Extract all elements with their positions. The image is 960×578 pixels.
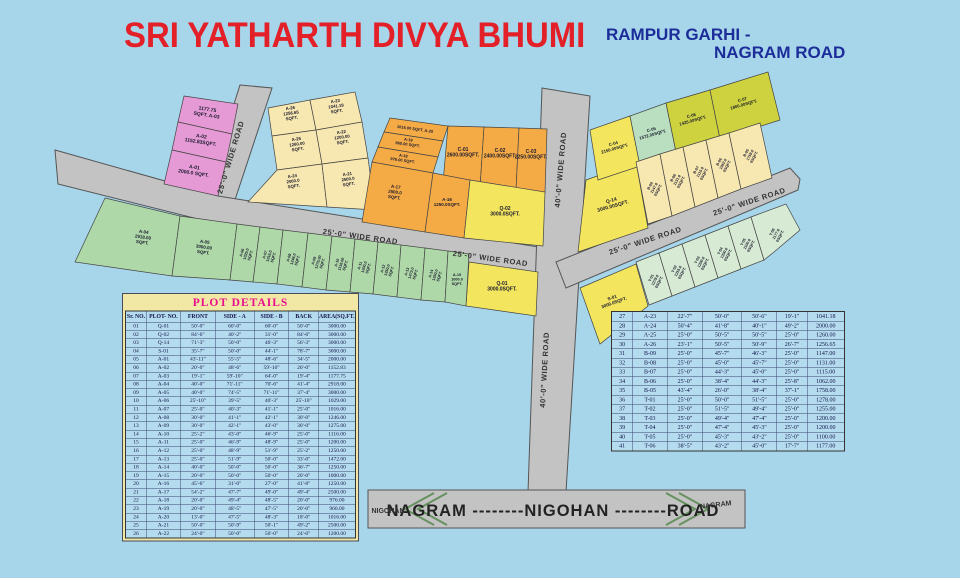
table-cell: 1255.00 xyxy=(807,404,844,413)
table-cell: 1029.00 xyxy=(319,397,356,405)
table-cell: 26'-0" xyxy=(702,386,742,395)
table-cell: A-16 xyxy=(146,480,181,488)
table-cell: 50'-0" xyxy=(254,463,289,471)
table-cell: 25'-0" xyxy=(777,414,807,423)
table-cell: 1200.00 xyxy=(319,530,356,539)
table-cell: 1200.00 xyxy=(807,423,844,432)
table-cell: 1250.00 xyxy=(319,480,356,488)
table-cell: A-11 xyxy=(146,438,181,446)
table-cell: 37'-1" xyxy=(777,386,807,395)
table-cell: 42'-1" xyxy=(215,422,254,430)
table-cell: 1041.18 xyxy=(807,312,844,322)
table-cell: T-04 xyxy=(632,423,667,432)
plot-table-header: Sr. NO.PLOT- NO.FRONTSIDE - ASIDE - BBAC… xyxy=(126,311,356,322)
plot-table-left: Sr. NO.PLOT- NO.FRONTSIDE - ASIDE - BBAC… xyxy=(125,311,356,539)
table-cell: B-07 xyxy=(632,367,667,376)
table-cell: 25'-10" xyxy=(289,397,319,405)
table-cell: S-01 xyxy=(146,347,181,355)
table-cell: 50'-9" xyxy=(215,521,254,529)
table-cell: 60'-0" xyxy=(254,322,289,330)
table-cell: 41 xyxy=(612,441,633,451)
table-cell: 20'-0" xyxy=(289,364,319,372)
table-cell: 24'-0" xyxy=(289,530,319,539)
table-cell: 44'-3" xyxy=(742,377,777,386)
table-cell: 2500.00 xyxy=(319,488,356,496)
table-cell: 25'-2" xyxy=(181,430,216,438)
table-row: 40T-0525'-0"45'-3"43'-2"25'-0"1100.00 xyxy=(612,432,845,441)
table-cell: 50'-5" xyxy=(702,330,742,339)
table-cell: 2500.00 xyxy=(319,521,356,529)
table-cell: 21 xyxy=(126,488,147,496)
table-cell: 49'-4" xyxy=(215,496,254,504)
table-cell: 50'-0" xyxy=(702,395,742,404)
table-cell: 25'-2" xyxy=(289,447,319,455)
table-cell: 40'-2" xyxy=(215,331,254,339)
page-background: SRI YATHARTH DIVYA BHUMI RAMPUR GARHI - … xyxy=(0,0,960,578)
table-cell: 84'-6" xyxy=(289,331,319,339)
column-header: FRONT xyxy=(181,311,216,322)
table-cell: 25'-10" xyxy=(181,397,216,405)
table-cell: 25'-0" xyxy=(181,455,216,463)
table-cell: 47'-7" xyxy=(215,488,254,496)
table-cell: B-09 xyxy=(632,349,667,358)
table-cell: 48'-5" xyxy=(215,505,254,513)
table-cell: 05 xyxy=(126,355,147,363)
table-cell: 19'-4" xyxy=(289,372,319,380)
table-cell: 50'-6" xyxy=(742,312,777,322)
table-row: 16A-1225'-0"48'-9"51'-9"25'-2"1250.00 xyxy=(126,447,356,455)
table-cell: B-08 xyxy=(632,358,667,367)
table-cell: 04 xyxy=(126,347,147,355)
table-cell: 50'-0" xyxy=(181,322,216,330)
table-cell: 1115.00 xyxy=(807,367,844,376)
table-cell: 50'-0" xyxy=(289,322,319,330)
table-cell: 25'-8" xyxy=(777,377,807,386)
table-cell: 55'-5" xyxy=(215,355,254,363)
table-cell: 45'-0" xyxy=(702,358,742,367)
table-cell: A-25 xyxy=(632,330,667,339)
table-row: 41T-0638'-5"43'-2"45'-0"17'-7"1177.00 xyxy=(612,441,845,451)
table-row: 22A-1820'-0"49'-4"48'-5"20'-0"976.00 xyxy=(126,496,356,504)
table-cell: 45'-7" xyxy=(742,358,777,367)
table-row: 08A-0440'-0"71'-11"70'-6"41'-4"2918.00 xyxy=(126,380,356,388)
table-cell: 71'-11" xyxy=(215,380,254,388)
table-cell: A-08 xyxy=(146,414,181,422)
table-cell: A-15 xyxy=(146,472,181,480)
table-cell: 42'-1" xyxy=(254,414,289,422)
table-cell: 25'-0" xyxy=(777,423,807,432)
table-cell: A-26 xyxy=(632,340,667,349)
table-cell: 19'-1" xyxy=(181,372,216,380)
table-cell: 46'-3" xyxy=(742,349,777,358)
table-cell: 50'-0" xyxy=(215,339,254,347)
table-cell: A-14 xyxy=(146,463,181,471)
table-cell: 1250.00 xyxy=(319,463,356,471)
table-cell: 976.00 xyxy=(319,496,356,504)
table-cell: 37'-4" xyxy=(289,389,319,397)
table-cell: 25'-0" xyxy=(777,432,807,441)
table-cell: 06 xyxy=(126,364,147,372)
table-cell: Q-02 xyxy=(146,331,181,339)
table-cell: 43'-4" xyxy=(667,386,702,395)
table-row: 25A-2150'-0"50'-9"50'-1"49'-2"2500.00 xyxy=(126,521,356,529)
table-cell: 1062.00 xyxy=(807,377,844,386)
table-cell: 43'-11" xyxy=(181,355,216,363)
table-cell: 25'-0" xyxy=(667,377,702,386)
table-cell: 50'-0" xyxy=(254,455,289,463)
table-cell: A-20 xyxy=(146,513,181,521)
table-cell: B-06 xyxy=(632,377,667,386)
table-cell: 48'-5" xyxy=(254,496,289,504)
table-cell: 20'-0" xyxy=(181,364,216,372)
table-cell: 50'-0" xyxy=(215,347,254,355)
table-cell: 20 xyxy=(126,480,147,488)
table-cell: 30'-0" xyxy=(181,414,216,422)
table-cell: A-24 xyxy=(632,321,667,330)
table-cell: T-01 xyxy=(632,395,667,404)
table-cell: 1147.00 xyxy=(807,349,844,358)
table-cell: 17 xyxy=(126,455,147,463)
table-cell: 25'-0" xyxy=(667,330,702,339)
table-cell: 20'-0" xyxy=(289,505,319,513)
table-cell: 1177.00 xyxy=(807,441,844,451)
table-row: 30A-2623'-1"50'-5"50'-9"26'-7"1256.65 xyxy=(612,340,845,349)
table-cell: 30 xyxy=(612,340,633,349)
table-cell: 59'-10" xyxy=(215,372,254,380)
table-row: 34B-0625'-0"38'-4"44'-3"25'-8"1062.00 xyxy=(612,377,845,386)
table-cell: 24 xyxy=(126,513,147,521)
table-row: 12A-0830'-0"41'-1"42'-1"30'-0"1246.00 xyxy=(126,414,356,422)
table-cell: 45'-6" xyxy=(181,480,216,488)
table-cell: 38'-4" xyxy=(742,386,777,395)
table-cell: A-18 xyxy=(146,496,181,504)
table-cell: 43'-2" xyxy=(702,441,742,451)
table-cell: 40 xyxy=(612,432,633,441)
table-cell: 03 xyxy=(126,339,147,347)
table-cell: 50'-5" xyxy=(702,340,742,349)
table-cell: 02 xyxy=(126,331,147,339)
table-cell: 1177.75 xyxy=(319,372,356,380)
table-cell: A-22 xyxy=(146,530,181,539)
table-cell: 84'-6" xyxy=(181,331,216,339)
table-cell: 41'-1" xyxy=(254,405,289,413)
table-cell: 49'-4" xyxy=(702,414,742,423)
table-cell: 51'-9" xyxy=(215,455,254,463)
table-cell: 51'-5" xyxy=(702,404,742,413)
table-cell: 49'-2" xyxy=(777,321,807,330)
table-row: 06A-0220'-0"48'-6"59'-10"20'-0"1152.83 xyxy=(126,364,356,372)
table-cell: 25 xyxy=(126,521,147,529)
table-cell: 44'-1" xyxy=(254,347,289,355)
table-row: 37T-0225'-0"51'-5"49'-4"25'-0"1255.00 xyxy=(612,404,845,413)
table-cell: 12 xyxy=(126,414,147,422)
table-cell: 1256.65 xyxy=(807,340,844,349)
table-cell: 25'-0" xyxy=(181,405,216,413)
table-row: 39T-0425'-0"47'-4"45'-3"25'-0"1200.00 xyxy=(612,423,845,432)
table-row: 20A-1645'-6"31'-0"27'-0"41'-8"1250.00 xyxy=(126,480,356,488)
table-row: 26A-2224'-0"50'-0"50'-0"24'-0"1200.00 xyxy=(126,530,356,539)
table-cell: 24'-0" xyxy=(181,530,216,539)
table-cell: 25'-0" xyxy=(667,414,702,423)
table-cell: 36'-7" xyxy=(289,463,319,471)
table-cell: 31'-0" xyxy=(254,331,289,339)
table-cell: 01 xyxy=(126,322,147,330)
table-cell: Q-14 xyxy=(146,339,181,347)
table-row: 23A-1920'-0"48'-5"47'-5"20'-0"960.00 xyxy=(126,505,356,513)
table-cell: 34 xyxy=(612,377,633,386)
table-cell: 33'-0" xyxy=(289,455,319,463)
table-cell: 59'-10" xyxy=(254,364,289,372)
table-row: 32B-0825'-0"45'-0"45'-7"25'-0"1131.00 xyxy=(612,358,845,367)
table-cell: 41'-4" xyxy=(289,380,319,388)
table-cell: 25'-0" xyxy=(289,438,319,446)
table-cell: 50'-0" xyxy=(215,463,254,471)
table-cell: 1131.00 xyxy=(807,358,844,367)
table-cell: 71'-11" xyxy=(254,389,289,397)
table-cell: 08 xyxy=(126,380,147,388)
table-cell: 50'-0" xyxy=(181,521,216,529)
nagram-nigohan-road-label: NAGRAM --------NIGOHAN --------ROAD xyxy=(387,502,720,520)
table-cell: A-04 xyxy=(146,380,181,388)
table-row: 07A-0319'-1"59'-10"64'-0"19'-4"1177.75 xyxy=(126,372,356,380)
table-cell: 50'-0" xyxy=(702,312,742,322)
table-cell: 45'-3" xyxy=(742,423,777,432)
table-cell: 41'-1" xyxy=(215,414,254,422)
table-cell: 40'-3" xyxy=(254,397,289,405)
table-cell: 56'-3" xyxy=(289,339,319,347)
table-cell: 49'-0" xyxy=(254,488,289,496)
table-cell: 25'-0" xyxy=(667,349,702,358)
table-cell: 40'-0" xyxy=(181,463,216,471)
table-cell: 41'-8" xyxy=(702,321,742,330)
table-cell: 11 xyxy=(126,405,147,413)
table-cell: 48'-3" xyxy=(254,513,289,521)
table-cell: 50'-0" xyxy=(215,472,254,480)
table-cell: 18 xyxy=(126,463,147,471)
table-cell: A-21 xyxy=(146,521,181,529)
table-cell: 40'-3" xyxy=(215,405,254,413)
table-cell: 29 xyxy=(612,330,633,339)
table-cell: 3000.00 xyxy=(319,347,356,355)
column-header: PLOT- NO. xyxy=(146,311,181,322)
table-cell: A-19 xyxy=(146,505,181,513)
table-row: 36T-0125'-0"50'-0"51'-5"25'-0"1278.00 xyxy=(612,395,845,404)
table-cell: 25'-0" xyxy=(777,330,807,339)
table-row: 03Q-1471'-3"50'-0"46'-3"56'-3"3000.00 xyxy=(126,339,356,347)
table-cell: A-17 xyxy=(146,488,181,496)
table-cell: 1016.00 xyxy=(319,405,356,413)
table-cell: 64'-0" xyxy=(254,372,289,380)
table-cell: 2000.00 xyxy=(807,321,844,330)
table-cell: 19'-1" xyxy=(777,312,807,322)
table-cell: A-23 xyxy=(632,312,667,322)
table-cell: 960.00 xyxy=(319,505,356,513)
table-row: 18A-1440'-0"50'-0"50'-0"36'-7"1250.00 xyxy=(126,463,356,471)
table-cell: 25'-0" xyxy=(667,395,702,404)
table-cell: 25'-0" xyxy=(181,438,216,446)
table-cell: 25'-0" xyxy=(667,358,702,367)
table-cell: 37 xyxy=(612,404,633,413)
table-cell: 54'-2" xyxy=(181,488,216,496)
table-cell: 30'-0" xyxy=(181,422,216,430)
table-cell: 33 xyxy=(612,367,633,376)
table-cell: 48'-6" xyxy=(215,364,254,372)
table-cell: A-13 xyxy=(146,455,181,463)
table-cell: 15 xyxy=(126,438,147,446)
table-cell: 48'-9" xyxy=(254,438,289,446)
table-cell: 07 xyxy=(126,372,147,380)
table-cell: 41'-8" xyxy=(289,480,319,488)
table-cell: A-02 xyxy=(146,364,181,372)
table-cell: 23'-1" xyxy=(667,340,702,349)
table-cell: 3000.00 xyxy=(319,331,356,339)
nigohan-direction-label: NIGOHAN xyxy=(371,508,404,515)
table-cell: 13 xyxy=(126,422,147,430)
table-cell: 2000.00 xyxy=(319,355,356,363)
table-cell: 50'-5" xyxy=(742,330,777,339)
table-row: 19A-1520'-0"50'-0"50'-0"20'-0"1000.00 xyxy=(126,472,356,480)
table-row: 31B-0925'-0"45'-7"46'-3"25'-0"1147.00 xyxy=(612,349,845,358)
table-cell: 49'-4" xyxy=(742,404,777,413)
table-cell: 35'-7" xyxy=(181,347,216,355)
table-cell: 47'-5" xyxy=(215,513,254,521)
table-cell: 49'-2" xyxy=(289,521,319,529)
table-cell: 50'-9" xyxy=(742,340,777,349)
table-cell: 25'-0" xyxy=(667,367,702,376)
table-cell: 1000.00 xyxy=(319,472,356,480)
table-cell: 40'-0" xyxy=(181,380,216,388)
table-row: 01Q-0150'-0"60'-0"60'-0"50'-0"3000.00 xyxy=(126,322,356,330)
table-cell: A-03 xyxy=(146,372,181,380)
table-cell: 1758.00 xyxy=(807,386,844,395)
table-cell: 44'-3" xyxy=(702,367,742,376)
table-cell: 45'-7" xyxy=(702,349,742,358)
table-cell: B-05 xyxy=(632,386,667,395)
table-cell: T-02 xyxy=(632,404,667,413)
table-cell: A-09 xyxy=(146,422,181,430)
table-cell: 47'-5" xyxy=(254,505,289,513)
table-cell: 25'-0" xyxy=(777,404,807,413)
table-row: 05A-0143'-11"55'-5"48'-6"34'-5"2000.00 xyxy=(126,355,356,363)
table-cell: 09 xyxy=(126,389,147,397)
table-cell: 31 xyxy=(612,349,633,358)
table-cell: 78'-7" xyxy=(289,347,319,355)
table-cell: 3000.00 xyxy=(319,339,356,347)
table-cell: 43'-2" xyxy=(742,432,777,441)
plot-label-A-15: A-151000.0SQFT. xyxy=(451,273,463,286)
table-cell: 10 xyxy=(126,397,147,405)
table-row: 02Q-0284'-6"40'-2"31'-0"84'-6"3000.00 xyxy=(126,331,356,339)
table-row: 24A-2013'-0"47'-5"48'-3"18'-0"1016.00 xyxy=(126,513,356,521)
table-cell: 25'-0" xyxy=(667,404,702,413)
table-cell: A-10 xyxy=(146,430,181,438)
table-cell: 50'-0" xyxy=(254,530,289,539)
table-cell: 1152.83 xyxy=(319,364,356,372)
table-cell: A-05 xyxy=(146,389,181,397)
table-row: 38T-0325'-0"49'-4"47'-4"25'-0"1200.00 xyxy=(612,414,845,423)
table-cell: 3000.00 xyxy=(319,322,356,330)
table-cell: 36 xyxy=(612,395,633,404)
table-cell: 1260.00 xyxy=(807,330,844,339)
table-cell: 25'-0" xyxy=(289,430,319,438)
table-cell: 27 xyxy=(612,312,633,322)
table-cell: 27'-0" xyxy=(254,480,289,488)
table-cell: 1246.00 xyxy=(319,414,356,422)
table-cell: 22 xyxy=(126,496,147,504)
table-cell: 1200.00 xyxy=(807,414,844,423)
table-cell: 32 xyxy=(612,358,633,367)
table-cell: T-06 xyxy=(632,441,667,451)
table-cell: A-07 xyxy=(146,405,181,413)
table-cell: 38 xyxy=(612,414,633,423)
table-cell: 25'-0" xyxy=(667,432,702,441)
table-cell: 20'-0" xyxy=(289,472,319,480)
table-row: 27A-2322'-7"50'-0"50'-6"19'-1"1041.18 xyxy=(612,312,845,322)
table-cell: 1472.00 xyxy=(319,455,356,463)
column-header: AREA(SQ.FT.) xyxy=(319,311,356,322)
table-cell: 45'-0" xyxy=(742,441,777,451)
table-row: 14A-1025'-2"43'-0"46'-9"25'-0"1116.00 xyxy=(126,430,356,438)
table-cell: 48'-6" xyxy=(254,355,289,363)
table-cell: 26 xyxy=(126,530,147,539)
table-cell: 45'-0" xyxy=(742,367,777,376)
column-header: BACK xyxy=(289,311,319,322)
table-cell: 43'-0" xyxy=(254,422,289,430)
table-cell: T-05 xyxy=(632,432,667,441)
table-cell: 2918.00 xyxy=(319,380,356,388)
table-cell: 40'-0" xyxy=(181,389,216,397)
table-cell: 50'-1" xyxy=(254,521,289,529)
table-cell: 28 xyxy=(612,321,633,330)
table-cell: 31'-0" xyxy=(215,480,254,488)
table-cell: 20'-0" xyxy=(181,496,216,504)
table-cell: 50'-4" xyxy=(667,321,702,330)
table-cell: 25'-0" xyxy=(777,367,807,376)
table-cell: A-06 xyxy=(146,397,181,405)
table-cell: 25'-0" xyxy=(667,423,702,432)
table-row: 11A-0725'-0"40'-3"41'-1"25'-0"1016.00 xyxy=(126,405,356,413)
table-cell: A-12 xyxy=(146,447,181,455)
table-cell: 39 xyxy=(612,423,633,432)
table-cell: 1250.00 xyxy=(319,447,356,455)
table-cell: 38'-5" xyxy=(667,441,702,451)
table-cell: A-01 xyxy=(146,355,181,363)
table-cell: 30'-0" xyxy=(289,414,319,422)
table-cell: 47'-4" xyxy=(742,414,777,423)
table-cell: 25'-0" xyxy=(777,358,807,367)
plot-details-table-left: PLOT DETAILS Sr. NO.PLOT- NO.FRONTSIDE -… xyxy=(122,293,359,542)
table-row: 29A-2525'-0"50'-5"50'-5"25'-0"1260.00 xyxy=(612,330,845,339)
table-cell: 1275.00 xyxy=(319,422,356,430)
table-cell: 51'-5" xyxy=(742,395,777,404)
table-row: 13A-0930'-0"42'-1"43'-0"30'-0"1275.00 xyxy=(126,422,356,430)
table-cell: 25'-0" xyxy=(777,395,807,404)
table-cell: 20'-0" xyxy=(181,505,216,513)
table-row: 15A-1125'-0"46'-9"48'-9"25'-0"1200.00 xyxy=(126,438,356,446)
table-cell: Q-01 xyxy=(146,322,181,330)
table-cell: 60'-0" xyxy=(215,322,254,330)
table-cell: 13'-0" xyxy=(181,513,216,521)
table-cell: 1200.00 xyxy=(319,438,356,446)
table-cell: 26'-7" xyxy=(777,340,807,349)
table-cell: 14 xyxy=(126,430,147,438)
table-cell: 40'-1" xyxy=(742,321,777,330)
table-row: 33B-0725'-0"44'-3"45'-0"25'-0"1115.00 xyxy=(612,367,845,376)
table-cell: 20'-0" xyxy=(289,496,319,504)
table-cell: 22'-7" xyxy=(667,312,702,322)
table-cell: 30'-0" xyxy=(289,422,319,430)
table-cell: 18'-0" xyxy=(289,513,319,521)
